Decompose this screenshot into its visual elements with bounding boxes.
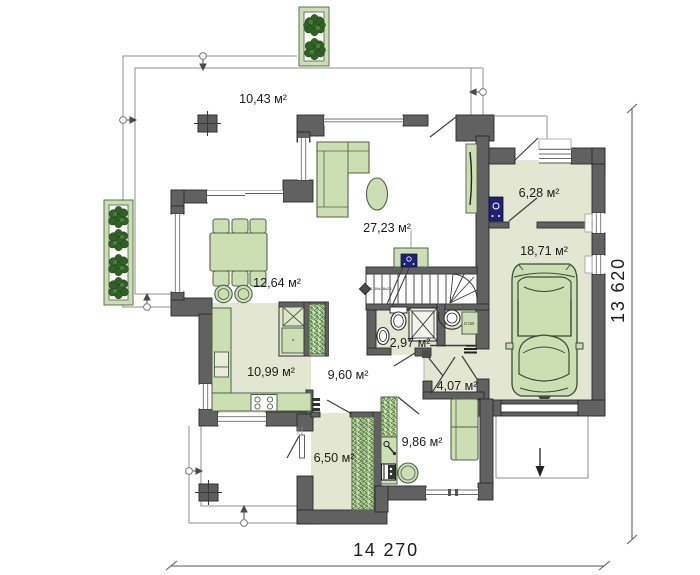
svg-text:18,71 м²: 18,71 м² — [520, 244, 568, 258]
svg-text:10,43 м²: 10,43 м² — [239, 92, 287, 106]
svg-text:10,99 м²: 10,99 м² — [247, 365, 295, 379]
svg-text:2,97 м²: 2,97 м² — [390, 336, 431, 350]
svg-text:Ст.М: Ст.М — [464, 321, 474, 326]
svg-text:12,64 м²: 12,64 м² — [253, 276, 301, 290]
svg-text:П. 16х18х25: П. 16х18х25 — [369, 286, 392, 291]
svg-text:9,86 м²: 9,86 м² — [402, 435, 443, 449]
svg-text:14 270: 14 270 — [353, 540, 419, 560]
svg-text:6,28 м²: 6,28 м² — [519, 186, 560, 200]
svg-text:13 620: 13 620 — [608, 257, 628, 323]
svg-text:27,23 м²: 27,23 м² — [363, 221, 411, 235]
svg-text:6,50 м²: 6,50 м² — [314, 451, 355, 465]
svg-text:4,07 м²: 4,07 м² — [437, 379, 478, 393]
svg-text:9,60 м²: 9,60 м² — [328, 368, 369, 382]
